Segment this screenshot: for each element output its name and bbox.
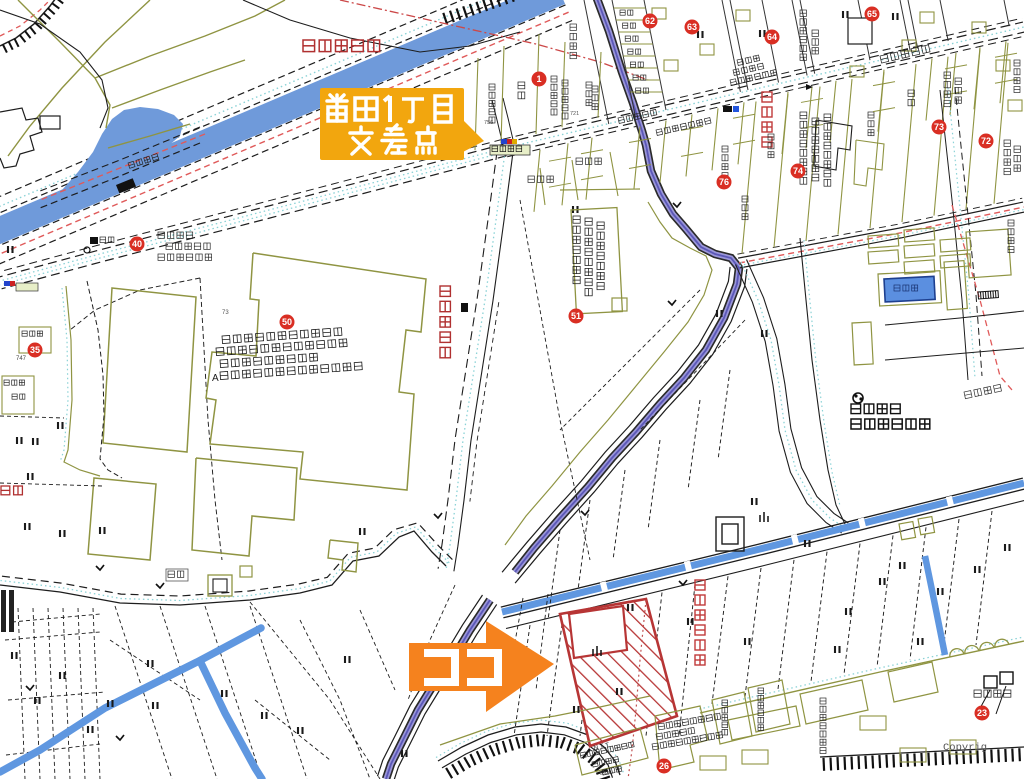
svg-text:23: 23 xyxy=(977,708,987,718)
svg-text:74: 74 xyxy=(793,166,803,176)
svg-text:50: 50 xyxy=(282,317,292,327)
svg-text:26: 26 xyxy=(659,761,669,771)
svg-text:73: 73 xyxy=(934,122,944,132)
svg-text:40: 40 xyxy=(132,239,142,249)
svg-text:A: A xyxy=(212,373,219,384)
svg-text:62: 62 xyxy=(645,16,655,26)
svg-text:63: 63 xyxy=(687,22,697,32)
svg-text:721: 721 xyxy=(570,111,579,117)
svg-text:1: 1 xyxy=(536,74,541,84)
svg-text:Copyrig: Copyrig xyxy=(943,742,987,754)
svg-text:76: 76 xyxy=(719,177,729,187)
svg-text:72: 72 xyxy=(981,136,991,146)
svg-text:64: 64 xyxy=(767,32,777,42)
svg-text:747: 747 xyxy=(16,356,27,362)
svg-text:73: 73 xyxy=(222,310,229,316)
svg-text:51: 51 xyxy=(571,311,581,321)
svg-text:65: 65 xyxy=(867,9,877,19)
svg-text:35: 35 xyxy=(30,345,40,355)
